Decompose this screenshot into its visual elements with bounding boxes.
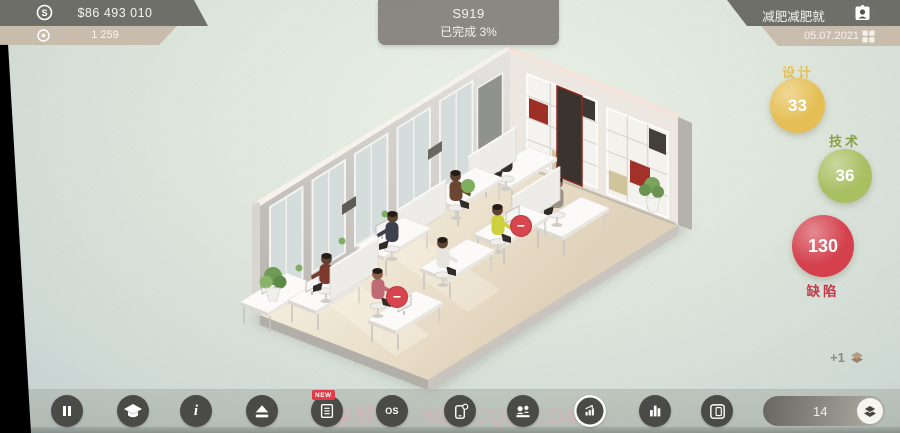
- staff-icon: [513, 402, 533, 421]
- publish-button[interactable]: [246, 395, 278, 427]
- education-button[interactable]: [117, 395, 149, 427]
- statistics-button[interactable]: [639, 395, 671, 427]
- minus-icon: −: [393, 289, 401, 305]
- news-list-icon: [318, 402, 336, 420]
- project-status-box[interactable]: S919 已完成 3%: [378, 0, 559, 45]
- tech-value: 36: [836, 166, 855, 186]
- money-bar[interactable]: S $86 493 010: [0, 0, 208, 26]
- grid-menu-icon: [862, 30, 875, 43]
- info-button[interactable]: i: [180, 395, 212, 427]
- office-scene: − −: [0, 0, 900, 433]
- floors-stack-icon: [849, 349, 865, 365]
- plant-held: [461, 179, 475, 193]
- os-button[interactable]: OS: [376, 395, 408, 427]
- research-bar[interactable]: 1 259: [0, 26, 177, 45]
- money-value: $86 493 010: [58, 6, 172, 20]
- mobile-button[interactable]: [444, 395, 476, 427]
- news-button[interactable]: NEW: [311, 395, 343, 427]
- xp-gain-popup: +1: [830, 349, 865, 365]
- company-name: 减肥减肥就: [753, 6, 834, 25]
- pause-button[interactable]: [51, 395, 83, 427]
- floors-stack-icon: [862, 403, 878, 419]
- id-badge-icon: [854, 4, 871, 21]
- defect-badge[interactable]: −: [387, 287, 408, 308]
- research-coin-icon: [37, 29, 50, 42]
- info-icon: i: [194, 403, 198, 420]
- tech-stat-circle: 36: [818, 149, 872, 203]
- devices-button[interactable]: [701, 395, 733, 427]
- project-progress: 已完成 3%: [440, 23, 497, 40]
- svg-text:S: S: [41, 8, 47, 18]
- os-icon: OS: [385, 406, 399, 416]
- defect-badge[interactable]: −: [511, 216, 532, 237]
- dollar-circle-icon: S: [36, 4, 53, 21]
- growth-stats-button[interactable]: [574, 395, 606, 427]
- defects-value: 130: [808, 236, 838, 257]
- game-screen: − − S $86 493 010 1 259 S919 已完成 3% 减肥减肥…: [0, 0, 900, 433]
- defects-label: 缺陷: [790, 280, 856, 300]
- project-name: S919: [452, 6, 484, 21]
- floors-button[interactable]: [857, 398, 883, 424]
- growth-stats-icon: [582, 403, 598, 419]
- tech-label: 技术: [815, 131, 875, 150]
- tablet-device-icon: [708, 402, 727, 421]
- phone-notification-icon: [451, 402, 470, 421]
- new-badge: NEW: [312, 390, 335, 400]
- research-value: 1 259: [55, 29, 155, 41]
- design-stat-circle: 33: [770, 78, 825, 133]
- bar-chart-icon: [646, 402, 664, 420]
- staff-button[interactable]: [507, 395, 539, 427]
- eject-up-icon: [253, 403, 271, 420]
- minus-icon: −: [517, 218, 525, 234]
- pause-icon: [61, 405, 73, 417]
- sill-plant: [296, 265, 303, 272]
- xp-gain-text: +1: [830, 350, 845, 365]
- floor-number: 14: [813, 404, 827, 419]
- wall-end-cap: [678, 117, 692, 230]
- graduation-cap-icon: [123, 402, 143, 420]
- floor-indicator[interactable]: 14: [763, 396, 885, 426]
- sill-plant: [339, 238, 346, 245]
- design-value: 33: [788, 96, 807, 116]
- date-value: 05.07.2021: [804, 30, 850, 42]
- defects-stat-circle: 130: [792, 215, 854, 277]
